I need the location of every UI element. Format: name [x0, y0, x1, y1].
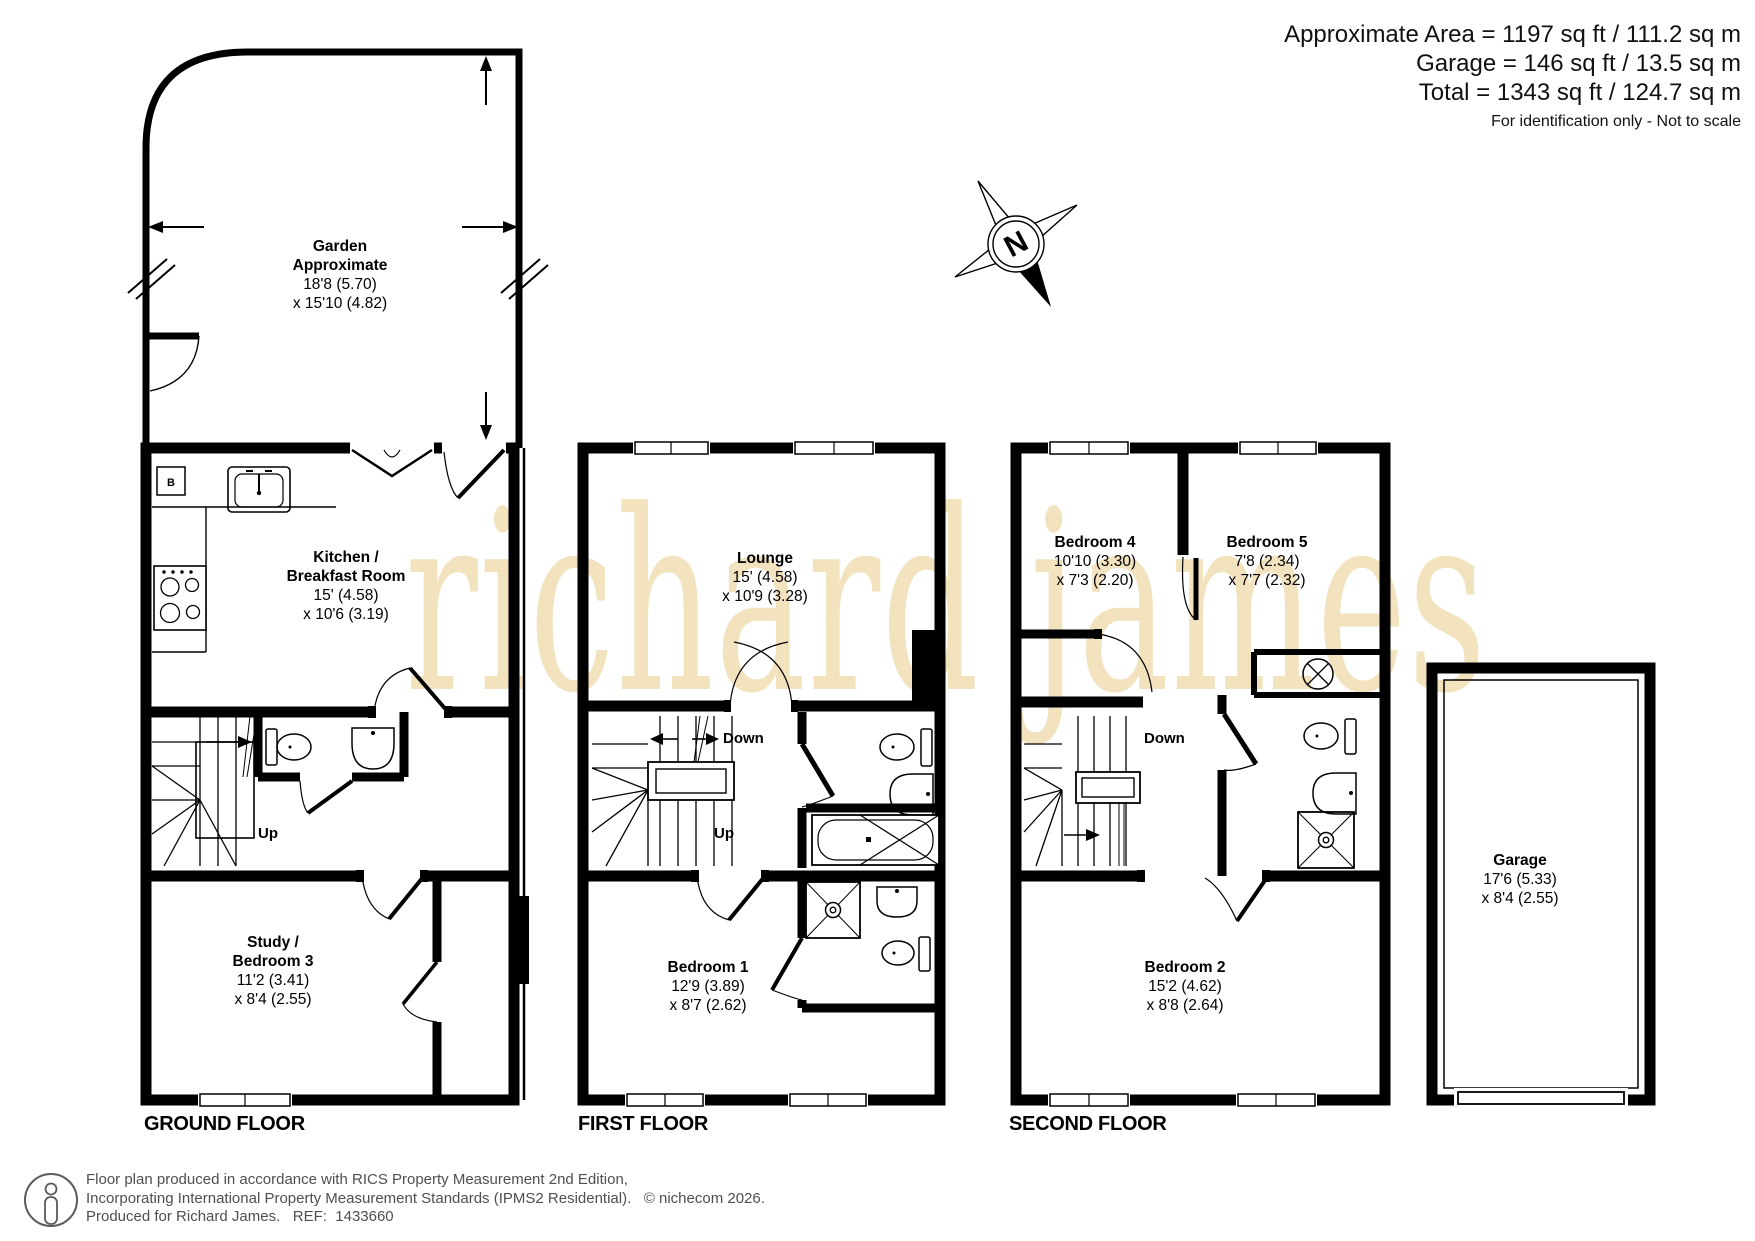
window — [198, 1092, 292, 1108]
garden-label: Garden Approximate 18'8 (5.70) x 15'10 (… — [293, 237, 388, 313]
door-arc — [1183, 557, 1196, 620]
not-to-scale-note: For identification only - Not to scale — [1284, 112, 1741, 132]
kitchen-label: Kitchen / Breakfast Room 15' (4.58) x 10… — [287, 548, 406, 624]
disclaimer: Floor plan produced in accordance with R… — [86, 1171, 765, 1227]
door-arc — [1224, 714, 1256, 770]
first-floor-title: FIRST FLOOR — [578, 1113, 708, 1136]
garage-door — [1454, 1088, 1628, 1112]
disclaimer-line1: Floor plan produced in accordance with R… — [86, 1171, 765, 1190]
toilet-icon — [880, 729, 932, 766]
french-door-icon — [350, 440, 434, 476]
lounge-label: Lounge 15' (4.58) x 10'9 (3.28) — [722, 549, 808, 606]
toilet-icon — [266, 729, 311, 765]
bedroom5-label: Bedroom 5 7'8 (2.34) x 7'7 (2.32) — [1227, 533, 1308, 590]
basin-icon — [352, 728, 394, 769]
first-floor-plan — [583, 440, 940, 1108]
basin-icon — [877, 887, 917, 917]
basin-icon — [1313, 773, 1356, 814]
stairs-first — [592, 716, 734, 866]
floorplan-drawing: B N — [0, 0, 1755, 1241]
second-floor-title: SECOND FLOOR — [1009, 1113, 1167, 1136]
person-icon — [25, 1174, 77, 1226]
disclaimer-line2: Incorporating International Property Mea… — [86, 1190, 765, 1209]
bedroom2-label: Bedroom 2 15'2 (4.62) x 8'8 (2.64) — [1145, 958, 1226, 1015]
toilet-icon — [882, 937, 930, 971]
door-arc — [1098, 634, 1152, 692]
rooflight-icon — [1303, 659, 1333, 689]
garage-label: Garage 17'6 (5.33) x 8'4 (2.55) — [1481, 851, 1558, 908]
door-arc — [362, 876, 424, 919]
door-arc — [300, 781, 352, 813]
stairs-up-label-first: Up — [714, 826, 734, 841]
bedroom4-label: Bedroom 4 10'10 (3.30) x 7'3 (2.20) — [1054, 533, 1136, 590]
toilet-icon — [1304, 719, 1356, 754]
chimney-breast — [912, 630, 940, 702]
bedroom1-label: Bedroom 1 12'9 (3.89) x 8'7 (2.62) — [668, 958, 749, 1015]
boiler-label: B — [167, 477, 175, 489]
back-door-icon — [442, 440, 506, 498]
stairs-down-label-first: Down — [723, 731, 764, 746]
area-summary: Approximate Area = 1197 sq ft / 111.2 sq… — [1284, 20, 1741, 132]
study-label: Study / Bedroom 3 11'2 (3.41) x 8'4 (2.5… — [233, 933, 314, 1009]
bath-icon — [812, 815, 939, 865]
approximate-area-text: Approximate Area = 1197 sq ft / 111.2 sq… — [1284, 20, 1741, 49]
ground-floor-title: GROUND FLOOR — [144, 1113, 305, 1136]
shower-icon — [806, 882, 860, 938]
door-arc — [697, 876, 765, 920]
door-arc — [1205, 876, 1268, 921]
total-area-text: Total = 1343 sq ft / 124.7 sq m — [1284, 78, 1741, 107]
stairs-ground — [152, 716, 257, 866]
stairs-second — [1024, 716, 1140, 866]
sink-icon — [228, 467, 290, 512]
shower-icon — [1298, 812, 1354, 868]
door-arc — [374, 668, 448, 712]
door-arc — [730, 642, 792, 706]
garage-area-text: Garage = 146 sq ft / 13.5 sq m — [1284, 49, 1741, 78]
door-arc — [772, 938, 802, 1000]
stairs-down-label-second: Down — [1144, 731, 1185, 746]
ground-floor-plan — [146, 440, 529, 1108]
stairs-up-label-ground: Up — [258, 826, 278, 841]
floorplan-page: richard james — [0, 0, 1755, 1241]
door-arc — [403, 962, 437, 1022]
door-arc — [802, 744, 833, 807]
hob-icon — [154, 566, 206, 630]
disclaimer-line3: Produced for Richard James. REF: 1433660 — [86, 1208, 765, 1227]
